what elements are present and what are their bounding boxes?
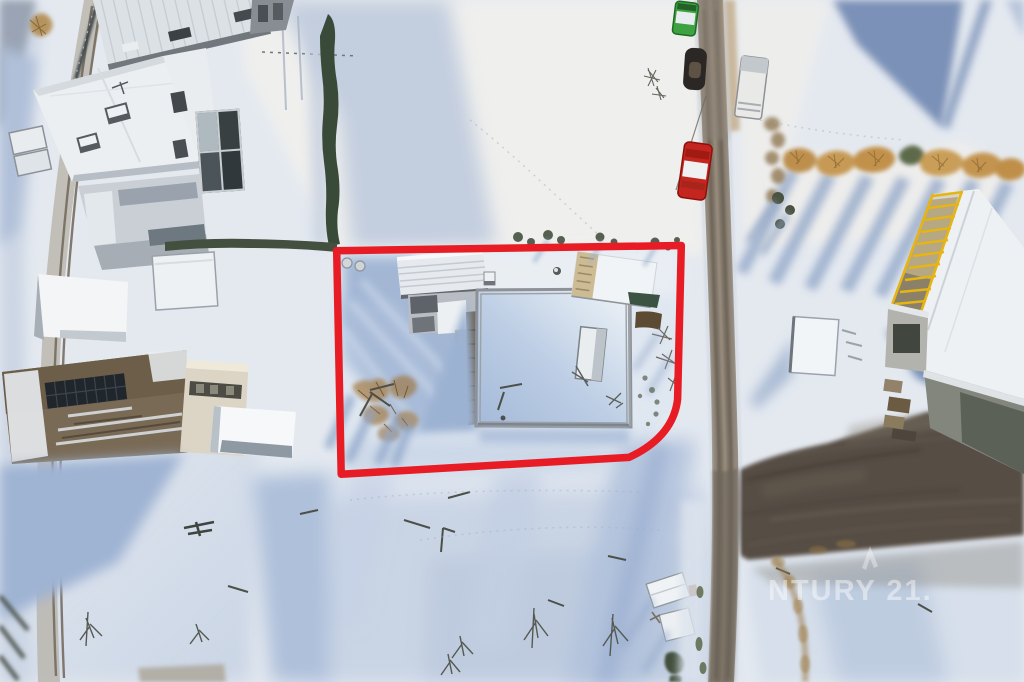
svg-text:NTURY 21.: NTURY 21. (768, 575, 933, 607)
